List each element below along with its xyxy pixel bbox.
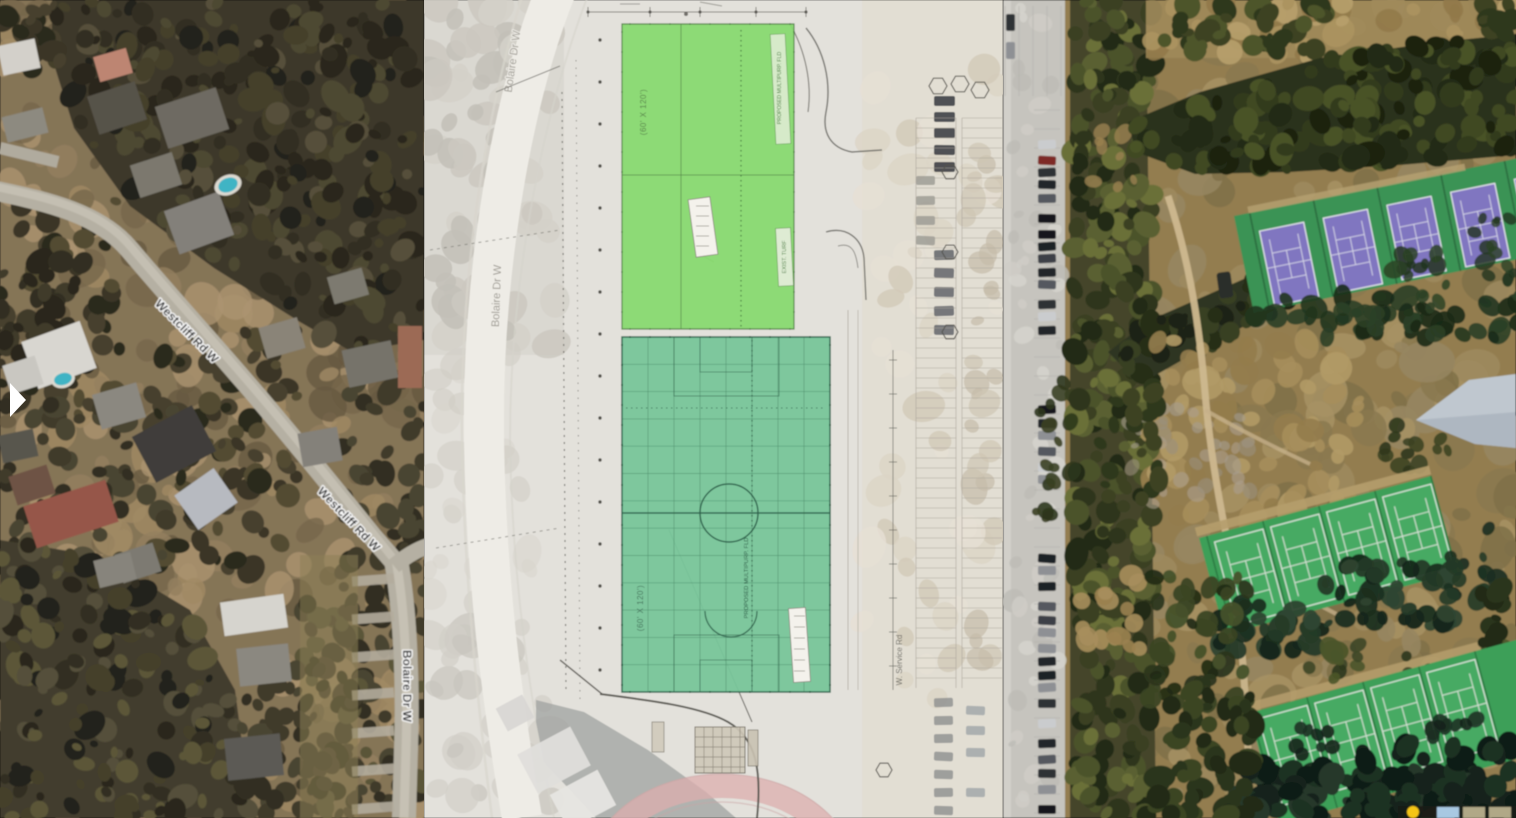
svg-text:PROPOSED MULTIPURP. FLD: PROPOSED MULTIPURP. FLD bbox=[777, 52, 783, 125]
svg-text:Bolaire Dr W: Bolaire Dr W bbox=[400, 650, 414, 723]
svg-text:(60' X 120'): (60' X 120') bbox=[636, 585, 645, 631]
svg-text:Bolaire Dr W: Bolaire Dr W bbox=[490, 264, 504, 327]
svg-text:(60' X 120'): (60' X 120') bbox=[639, 89, 648, 135]
svg-text:W. Service Rd: W. Service Rd bbox=[895, 635, 904, 686]
svg-text:EXIST. TURF: EXIST. TURF bbox=[782, 240, 788, 274]
svg-text:PROPOSED MULTIPURP. FLD: PROPOSED MULTIPURP. FLD bbox=[744, 538, 750, 619]
